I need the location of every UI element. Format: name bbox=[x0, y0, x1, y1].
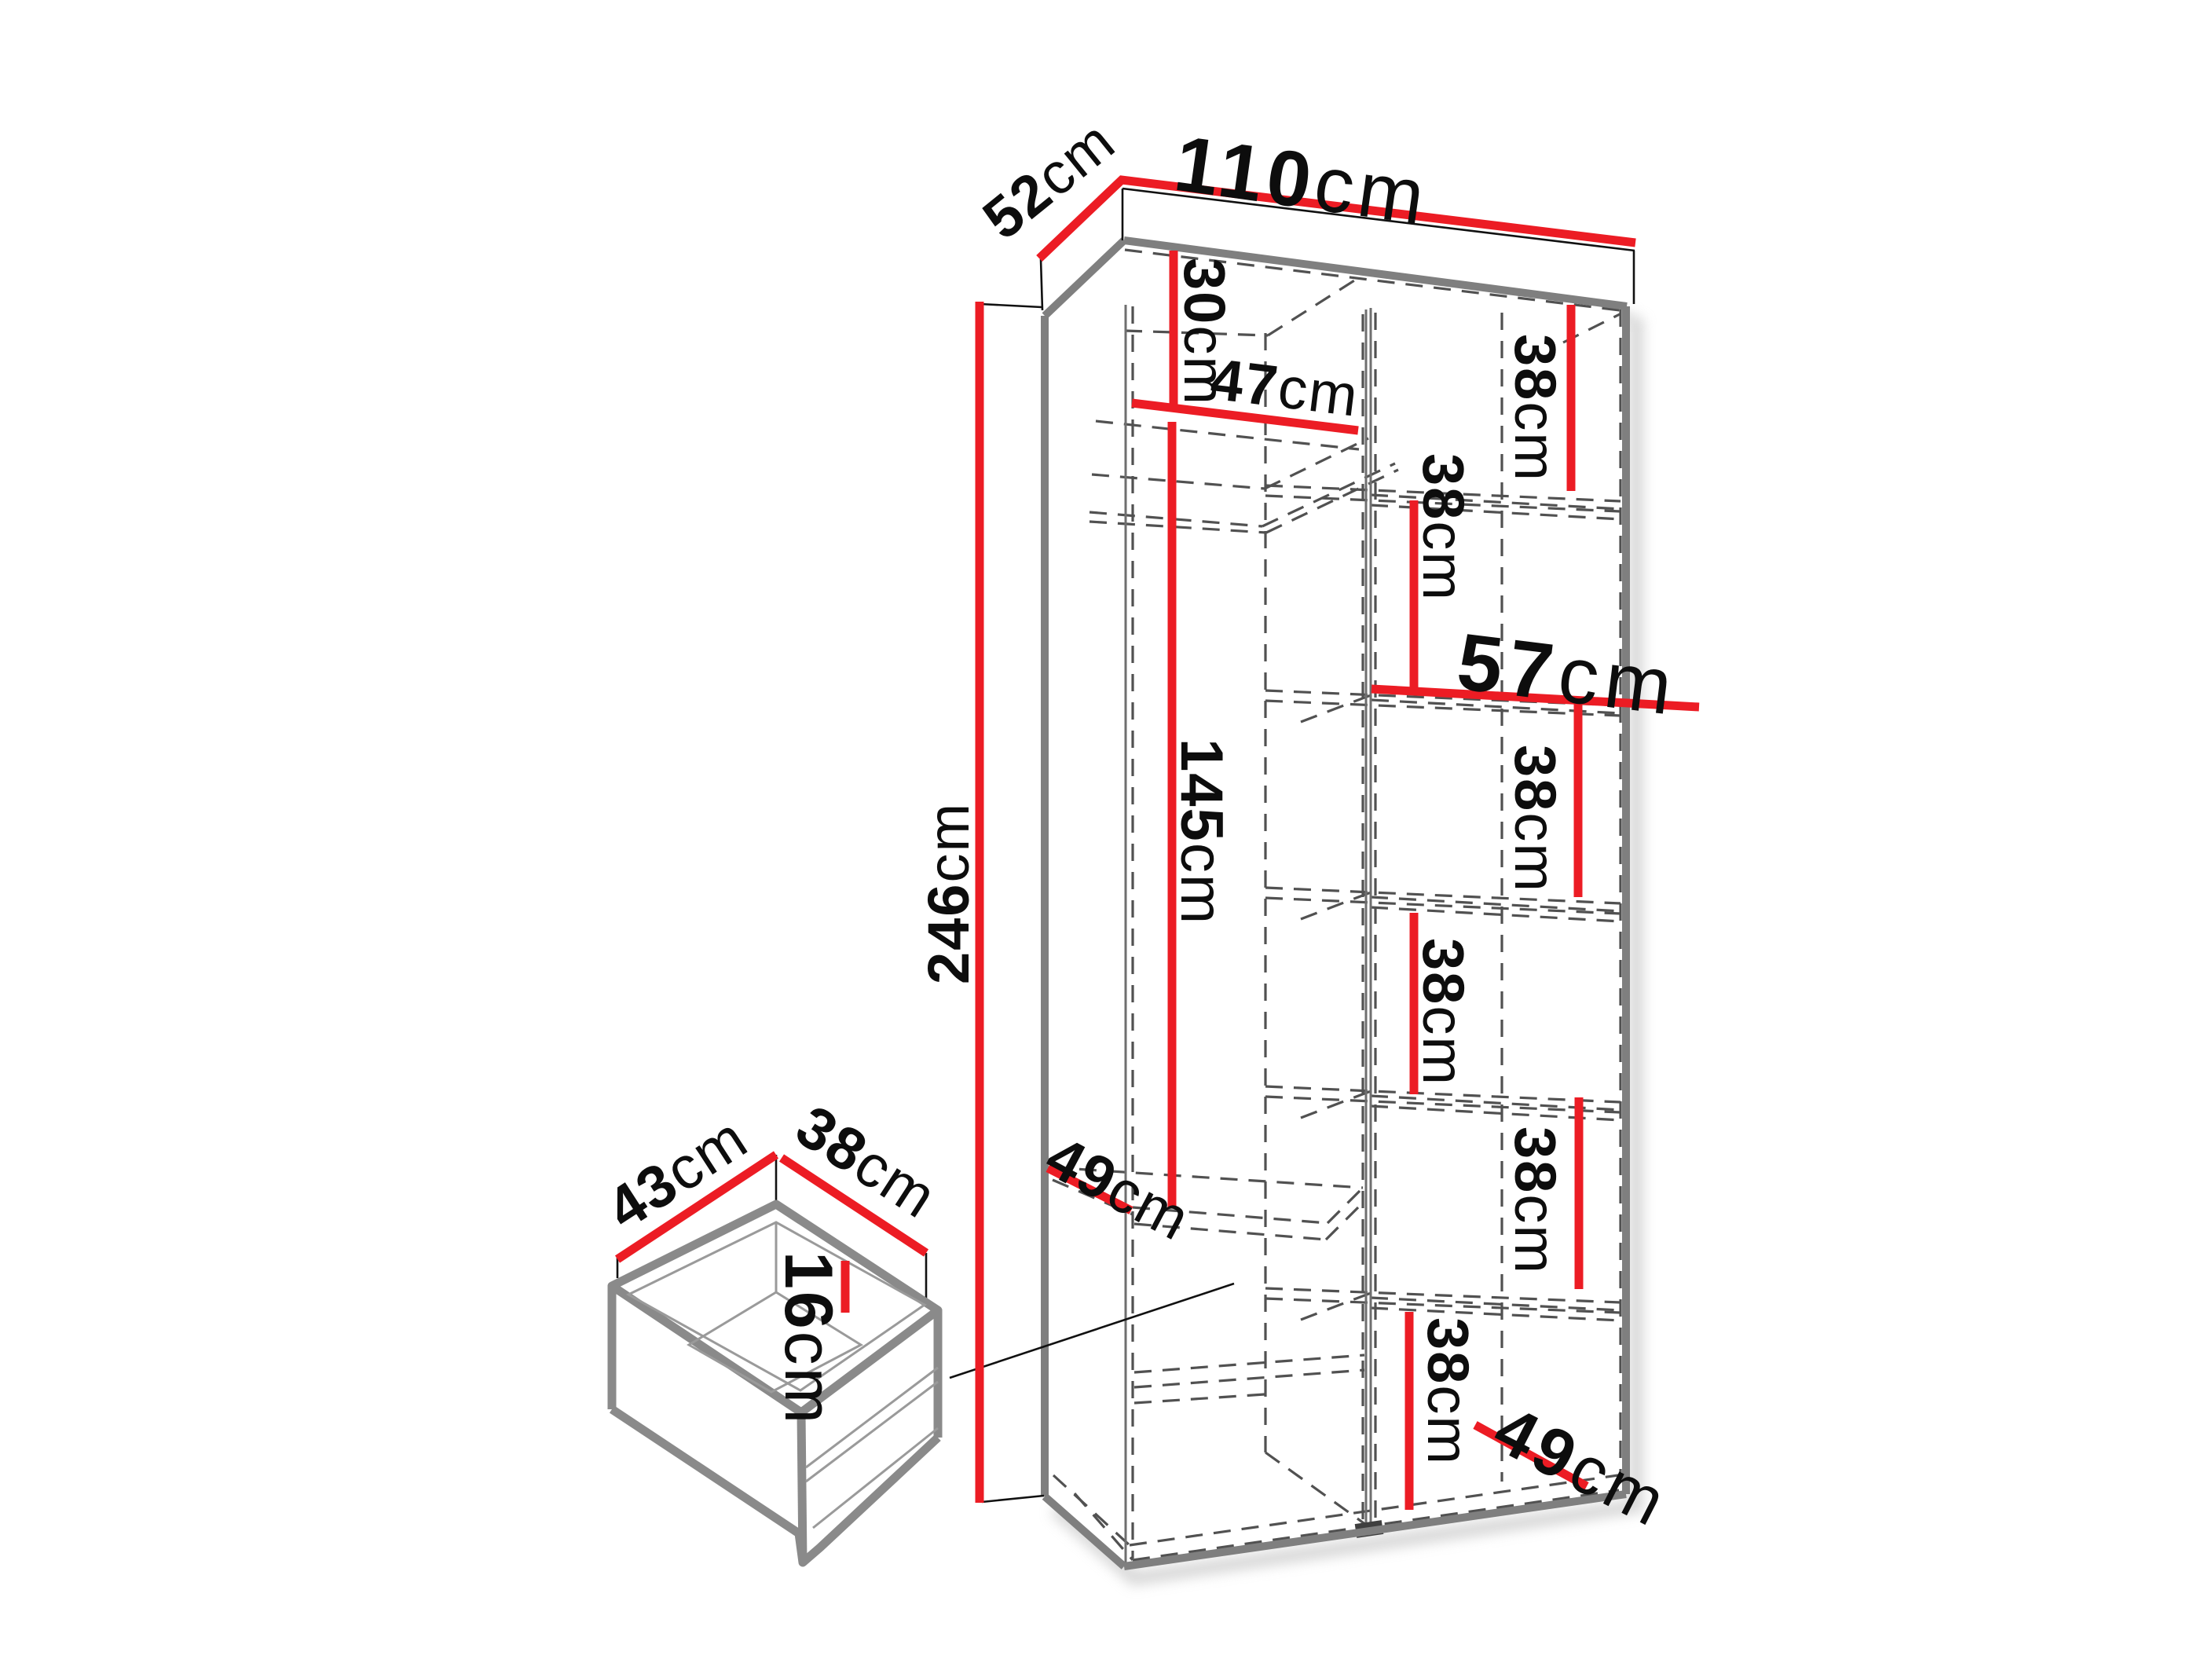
svg-text:38cm: 38cm bbox=[1411, 453, 1476, 602]
svg-text:145cm: 145cm bbox=[1168, 738, 1235, 925]
svg-text:16cm: 16cm bbox=[771, 1251, 846, 1426]
svg-text:38cm: 38cm bbox=[1415, 1317, 1481, 1466]
svg-text:38cm: 38cm bbox=[1503, 334, 1568, 482]
svg-text:38cm: 38cm bbox=[1411, 938, 1476, 1086]
svg-text:246cm: 246cm bbox=[916, 802, 981, 984]
svg-text:38cm: 38cm bbox=[1503, 1126, 1568, 1275]
svg-text:38cm: 38cm bbox=[1503, 745, 1568, 893]
